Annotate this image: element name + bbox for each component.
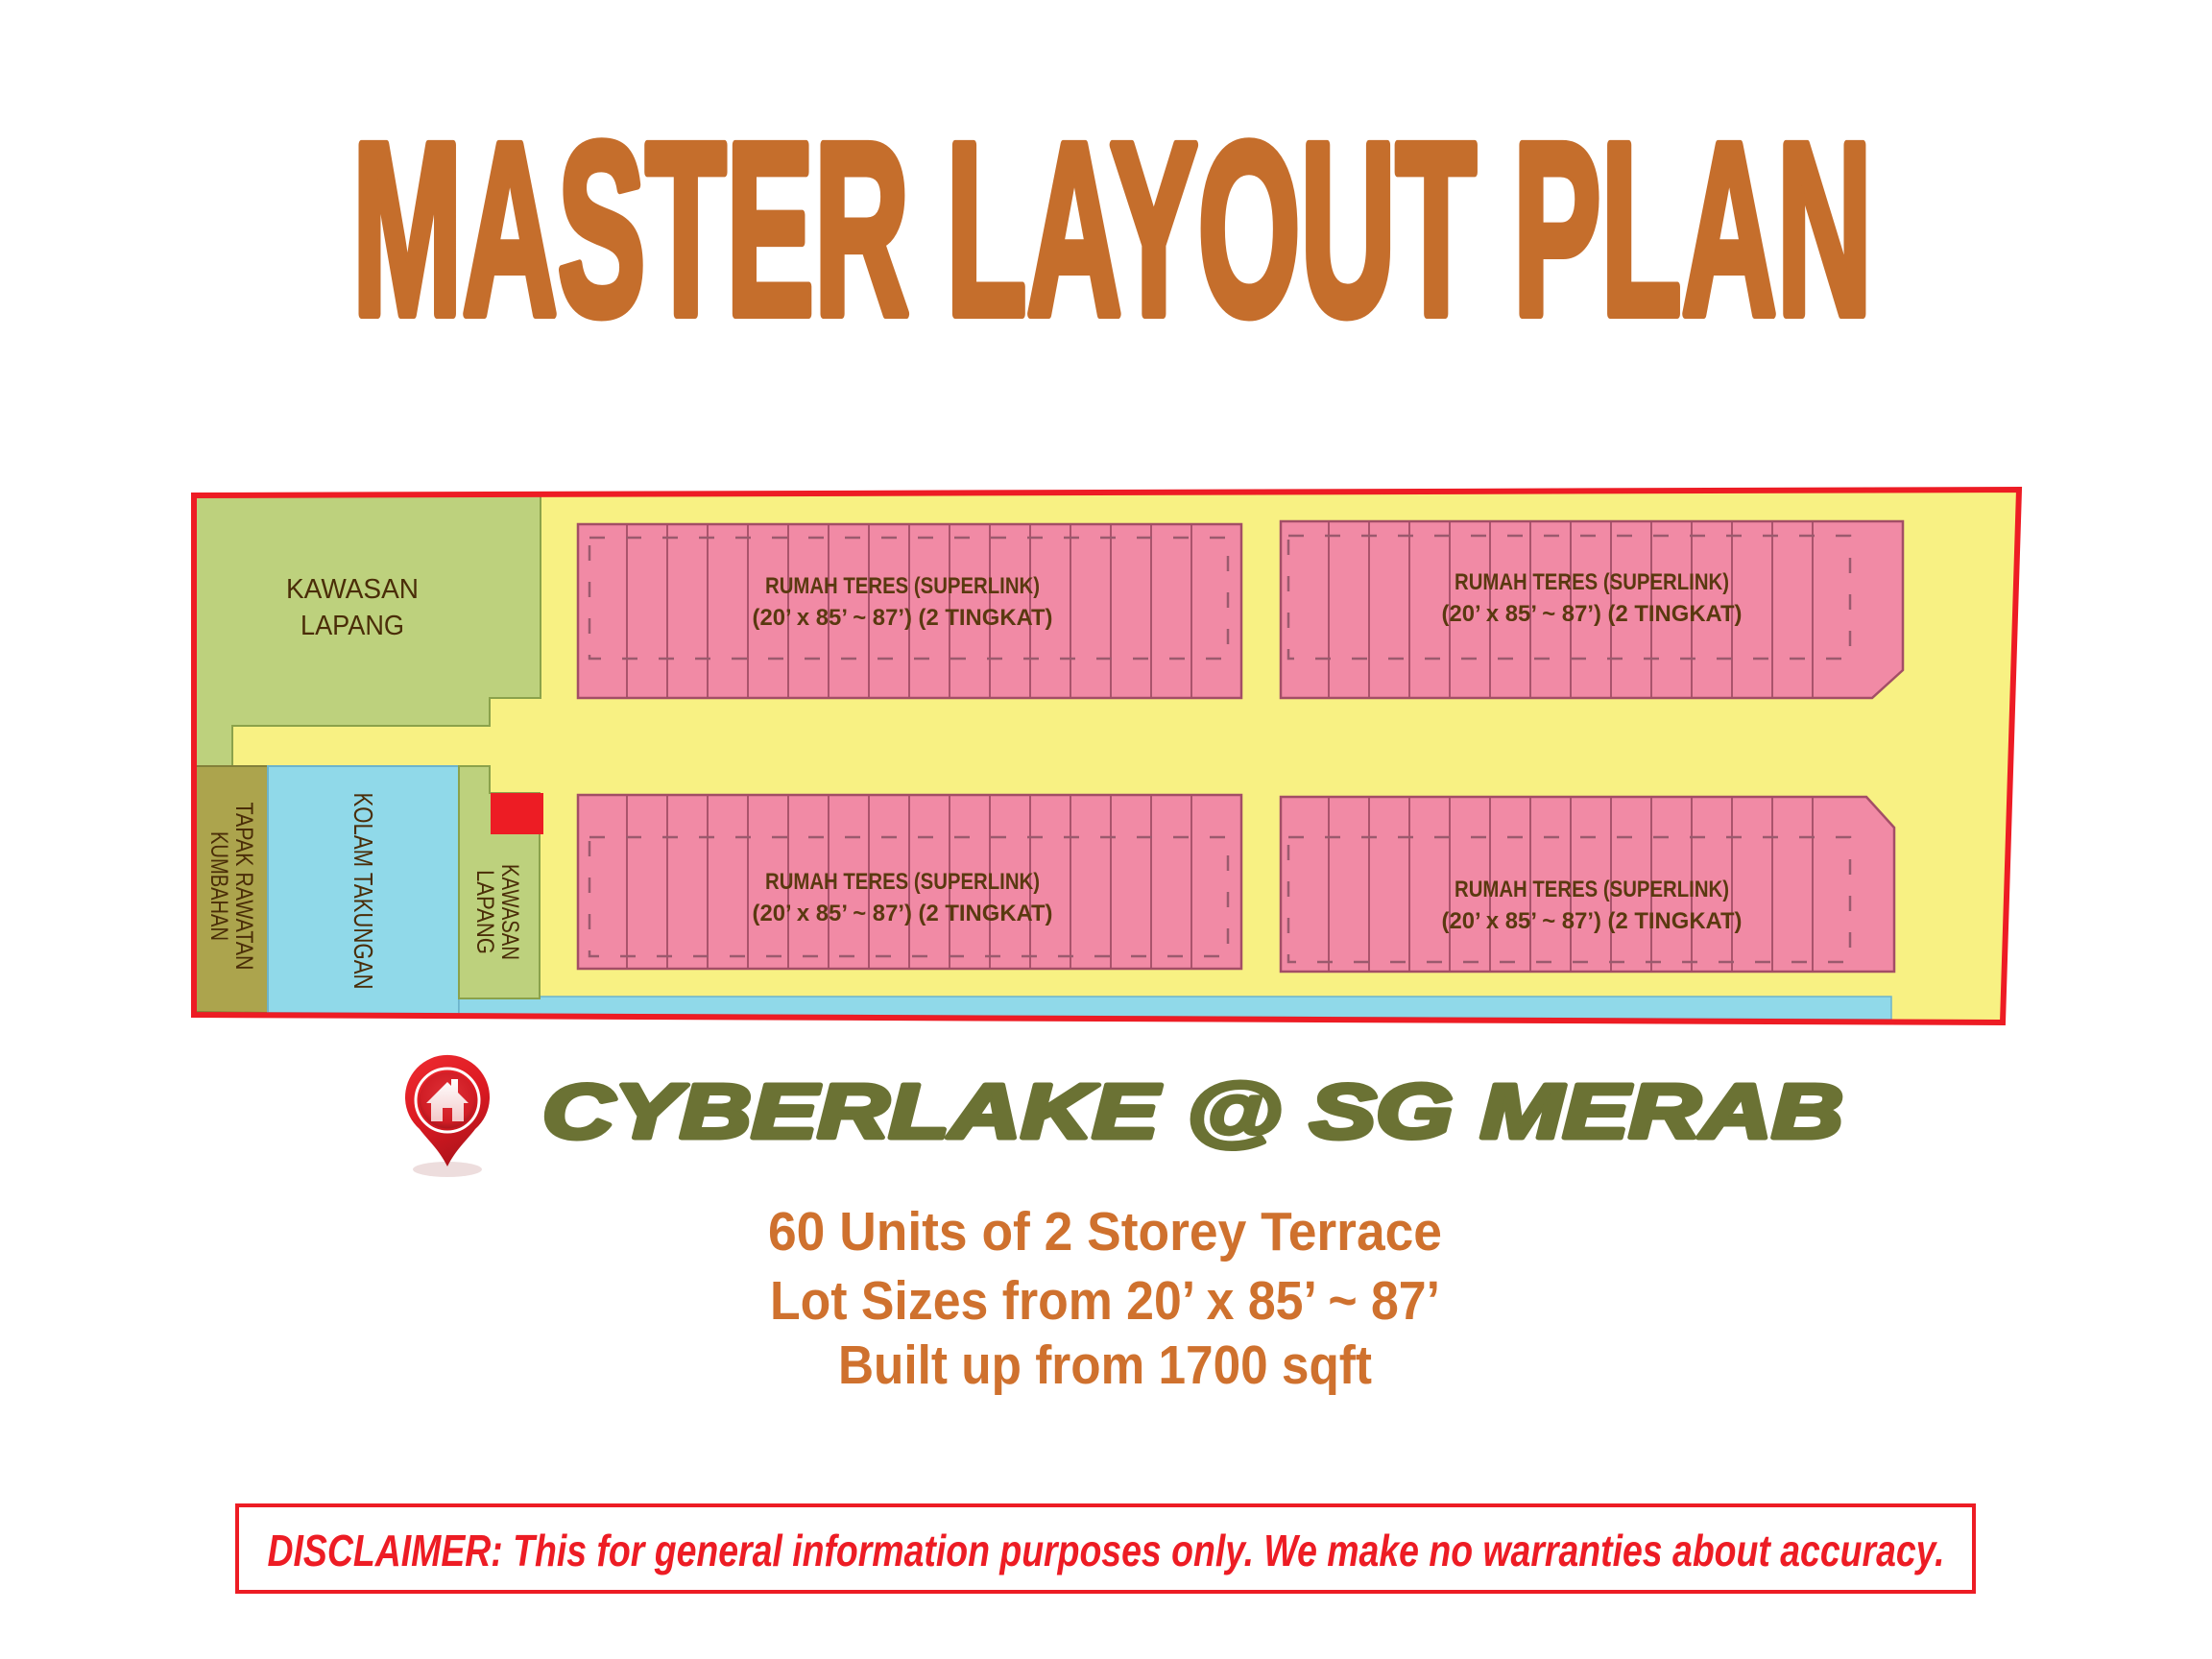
svg-text:Built up from 1700 sqft: Built up from 1700 sqft	[838, 1334, 1372, 1396]
svg-text:60 Units of 2 Storey Terrace: 60 Units of 2 Storey Terrace	[768, 1201, 1442, 1262]
svg-text:LAPANG: LAPANG	[301, 611, 404, 641]
svg-text:KAWASAN: KAWASAN	[286, 574, 419, 605]
svg-text:KAWASANLAPANG: KAWASANLAPANG	[471, 864, 523, 960]
svg-text:CYBERLAKE @ SG MERAB: CYBERLAKE @ SG MERAB	[542, 1069, 1843, 1154]
svg-text:(20’ x 85’ ~ 87’) (2 TINGKAT): (20’ x 85’ ~ 87’) (2 TINGKAT)	[753, 901, 1053, 926]
svg-text:DISCLAIMER: This for general i: DISCLAIMER: This for general information…	[268, 1526, 1945, 1575]
svg-text:Lot Sizes from 20’ x 85’ ~ 87’: Lot Sizes from 20’ x 85’ ~ 87’	[770, 1270, 1440, 1332]
svg-text:RUMAH TERES (SUPERLINK): RUMAH TERES (SUPERLINK)	[765, 869, 1040, 895]
svg-text:KOLAM TAKUNGAN: KOLAM TAKUNGAN	[349, 793, 378, 990]
svg-text:(20’ x 85’ ~ 87’) (2 TINGKAT): (20’ x 85’ ~ 87’) (2 TINGKAT)	[753, 605, 1053, 631]
svg-text:(20’ x 85’ ~ 87’) (2 TINGKAT): (20’ x 85’ ~ 87’) (2 TINGKAT)	[1442, 601, 1743, 627]
svg-text:MASTER LAYOUT PLAN: MASTER LAYOUT PLAN	[352, 92, 1872, 367]
svg-text:RUMAH TERES (SUPERLINK): RUMAH TERES (SUPERLINK)	[1455, 569, 1729, 595]
svg-text:RUMAH TERES (SUPERLINK): RUMAH TERES (SUPERLINK)	[1455, 877, 1729, 902]
svg-text:RUMAH TERES (SUPERLINK): RUMAH TERES (SUPERLINK)	[765, 573, 1040, 599]
svg-text:(20’ x 85’ ~ 87’) (2 TINGKAT): (20’ x 85’ ~ 87’) (2 TINGKAT)	[1442, 908, 1743, 934]
